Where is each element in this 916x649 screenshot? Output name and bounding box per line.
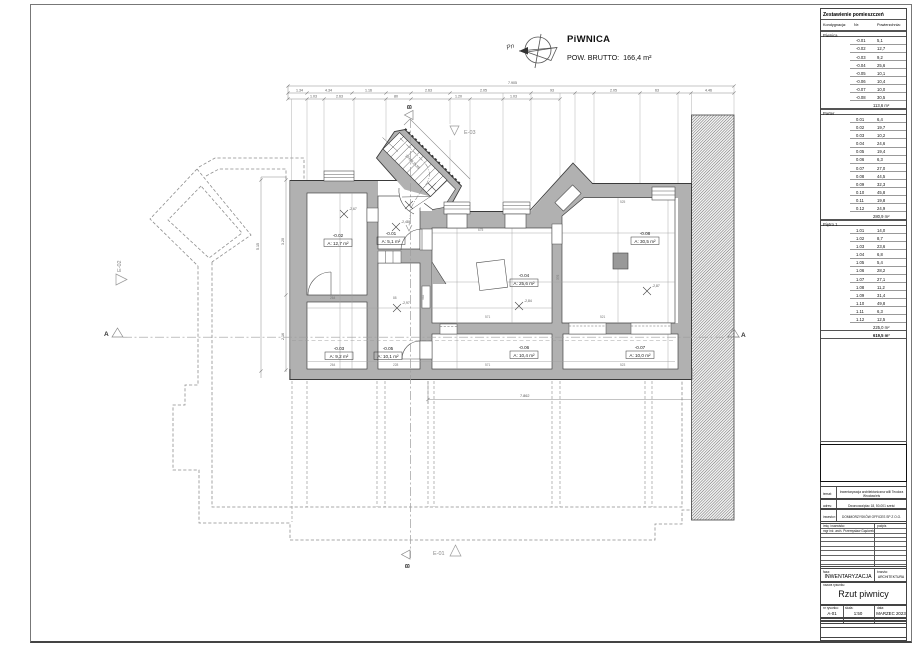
svg-text:-0.03: -0.03 bbox=[334, 346, 345, 351]
svg-text:-2,84: -2,84 bbox=[524, 299, 532, 303]
svg-text:A: A bbox=[741, 332, 746, 339]
svg-text:7.862: 7.862 bbox=[520, 394, 530, 398]
svg-text:675: 675 bbox=[478, 228, 484, 232]
svg-text:2.05: 2.05 bbox=[610, 89, 617, 93]
svg-text:-0.05: -0.05 bbox=[383, 346, 394, 351]
svg-text:2.05: 2.05 bbox=[480, 89, 487, 93]
svg-text:462: 462 bbox=[421, 294, 425, 300]
svg-text:B: B bbox=[408, 104, 414, 109]
svg-text:-2,48: -2,48 bbox=[401, 220, 409, 224]
svg-text:-2,87: -2,87 bbox=[652, 284, 660, 288]
svg-text:-0.08: -0.08 bbox=[640, 231, 651, 236]
svg-text:80: 80 bbox=[394, 95, 398, 99]
svg-text:63: 63 bbox=[655, 89, 659, 93]
svg-text:523: 523 bbox=[620, 363, 626, 367]
svg-text:A: 12,7 m²: A: 12,7 m² bbox=[327, 241, 349, 246]
svg-text:571: 571 bbox=[485, 315, 491, 319]
svg-text:4.34: 4.34 bbox=[325, 89, 332, 93]
svg-text:7.905: 7.905 bbox=[508, 81, 517, 85]
svg-text:A: 25,6 m²: A: 25,6 m² bbox=[513, 281, 535, 286]
svg-text:2.63: 2.63 bbox=[336, 95, 343, 99]
svg-text:376: 376 bbox=[556, 274, 560, 280]
svg-text:1.03: 1.03 bbox=[310, 95, 317, 99]
svg-text:A: 30,5 m²: A: 30,5 m² bbox=[634, 239, 656, 244]
svg-text:A: 10,1 m²: A: 10,1 m² bbox=[377, 354, 399, 359]
svg-text:-0.01: -0.01 bbox=[386, 231, 397, 236]
svg-text:1.16: 1.16 bbox=[365, 89, 372, 93]
svg-text:525: 525 bbox=[620, 200, 626, 204]
svg-text:Pn: Pn bbox=[506, 42, 516, 51]
svg-text:B: B bbox=[406, 563, 412, 568]
svg-text:E-03: E-03 bbox=[464, 130, 476, 136]
svg-text:521: 521 bbox=[600, 315, 606, 319]
svg-text:E-01: E-01 bbox=[433, 551, 445, 557]
svg-text:A: 9,2 m²: A: 9,2 m² bbox=[330, 354, 349, 359]
svg-text:3.20: 3.20 bbox=[281, 238, 285, 245]
svg-text:-0.06: -0.06 bbox=[519, 345, 530, 350]
svg-text:E-02: E-02 bbox=[117, 260, 123, 272]
svg-text:A: 10,4 m²: A: 10,4 m² bbox=[513, 353, 535, 358]
svg-text:228: 228 bbox=[393, 363, 399, 367]
svg-text:-2,67: -2,67 bbox=[349, 207, 357, 211]
svg-text:88: 88 bbox=[393, 296, 397, 300]
svg-text:4.46: 4.46 bbox=[705, 89, 712, 93]
svg-text:2.63: 2.63 bbox=[425, 89, 432, 93]
svg-text:-0.04: -0.04 bbox=[519, 273, 530, 278]
svg-text:264: 264 bbox=[330, 296, 336, 300]
svg-text:1.20: 1.20 bbox=[455, 95, 462, 99]
svg-text:93: 93 bbox=[550, 89, 554, 93]
svg-text:1.34: 1.34 bbox=[296, 89, 303, 93]
svg-text:A: A bbox=[104, 331, 109, 338]
svg-text:-2,97: -2,97 bbox=[402, 301, 410, 305]
svg-text:2.16: 2.16 bbox=[281, 333, 285, 340]
svg-text:-0.02: -0.02 bbox=[333, 233, 344, 238]
svg-text:1.03: 1.03 bbox=[510, 95, 517, 99]
svg-text:-0.07: -0.07 bbox=[635, 345, 646, 350]
svg-text:A: 10,0 m²: A: 10,0 m² bbox=[629, 353, 651, 358]
svg-text:264: 264 bbox=[330, 363, 336, 367]
svg-text:5.15: 5.15 bbox=[256, 243, 260, 250]
svg-text:571: 571 bbox=[485, 363, 491, 367]
svg-text:A: 5,1 m²: A: 5,1 m² bbox=[382, 239, 401, 244]
